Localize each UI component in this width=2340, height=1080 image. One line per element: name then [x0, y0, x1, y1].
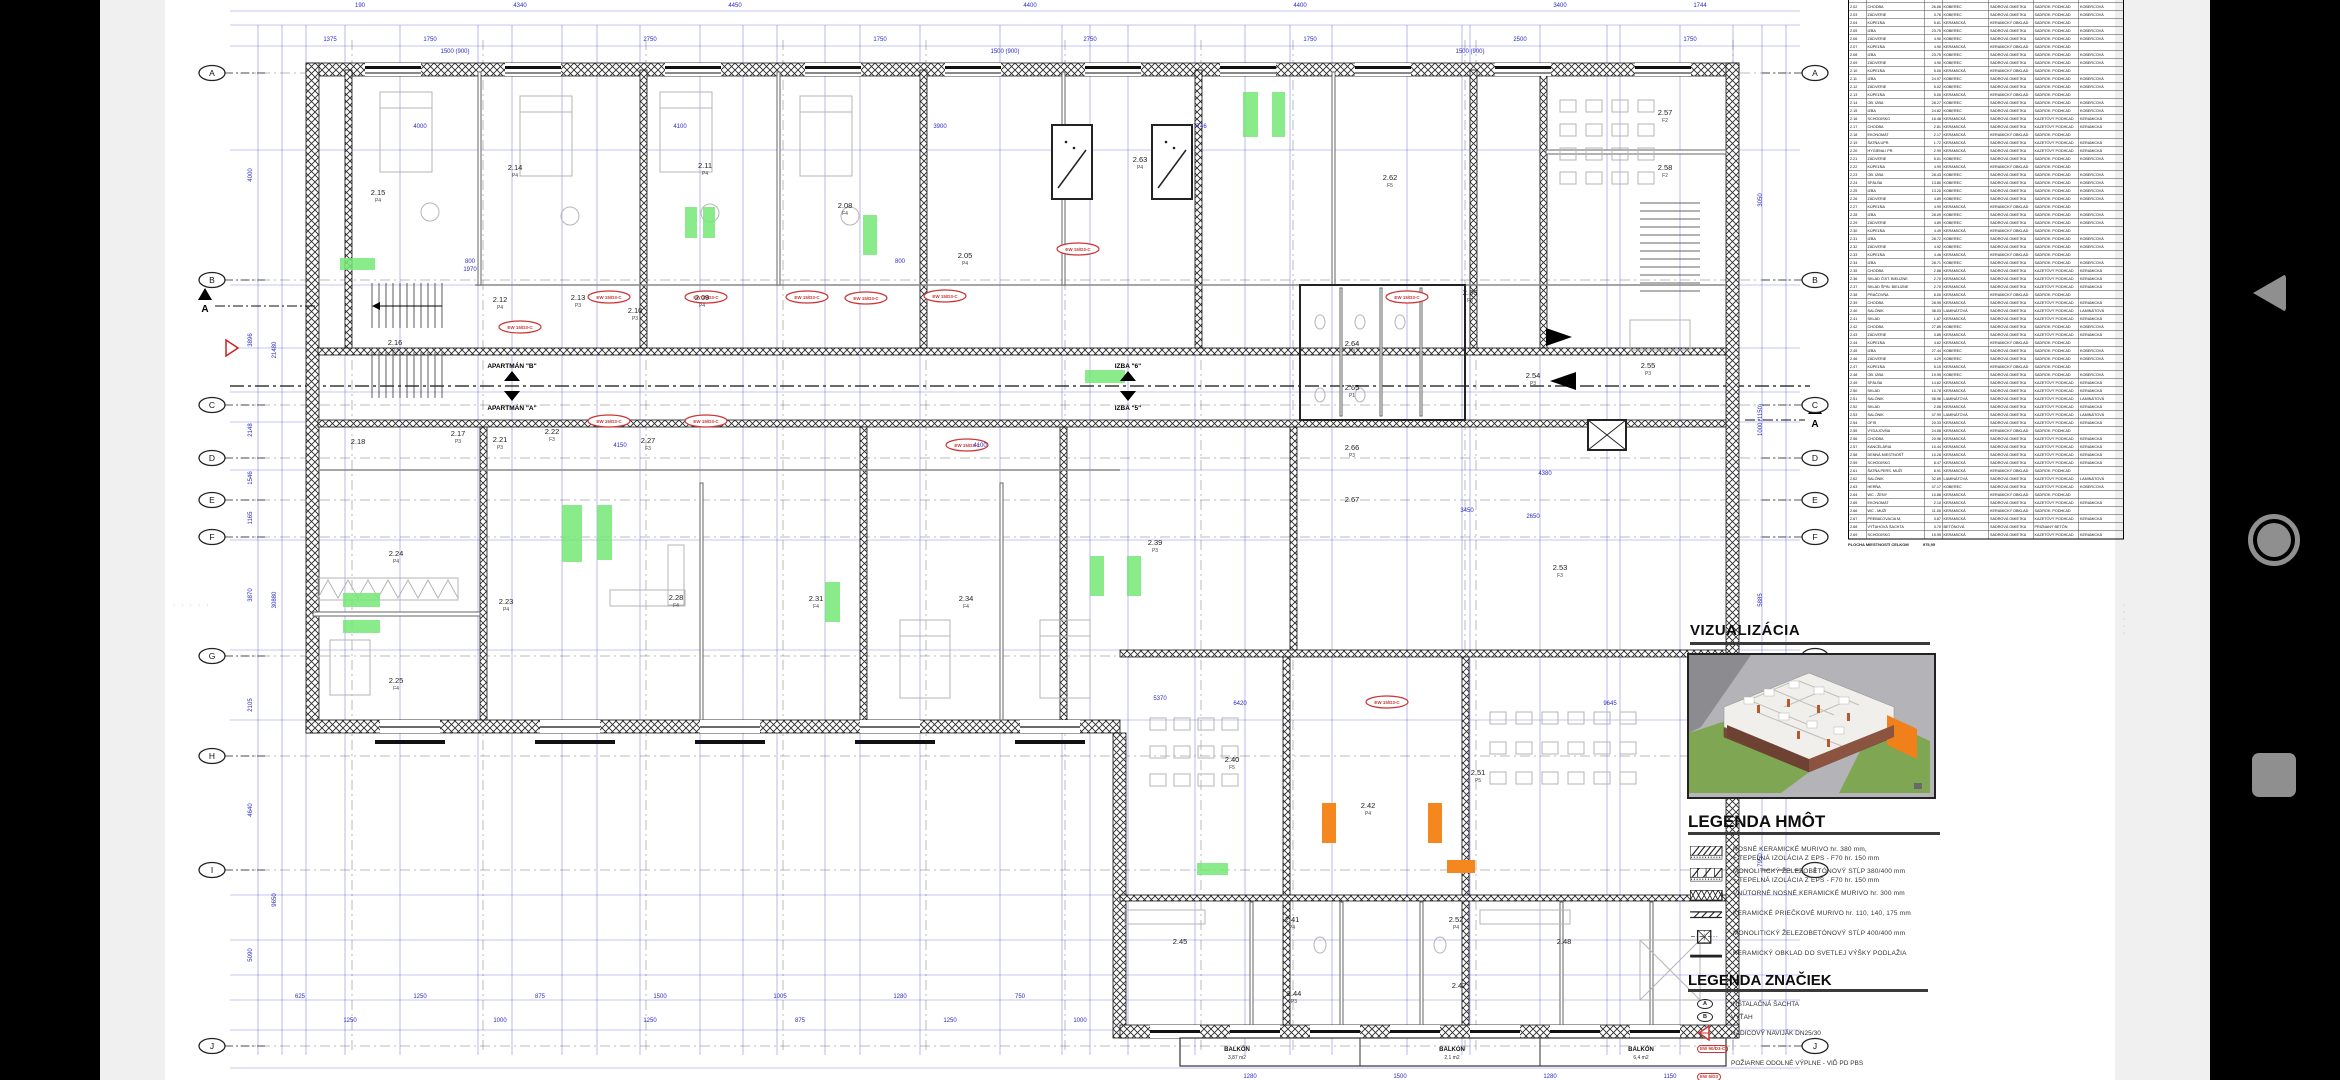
balcony-labels: BALKÓN3,87 m2BALKÓN2,1 m2BALKÓN6,4 m2 — [1224, 1045, 1654, 1061]
dimension-value: 1750 — [1683, 37, 1697, 43]
svg-text:2.63: 2.63 — [1133, 155, 1148, 164]
schedule-row: 2.61ŠATŇA PERS. MUŽI8.91KERAMICKÁKERAMIC… — [1849, 467, 2124, 475]
svg-text:F5: F5 — [1387, 183, 1393, 189]
svg-text:2.17: 2.17 — [451, 429, 466, 438]
svg-text:F3: F3 — [549, 437, 555, 443]
highlight-orange — [1447, 860, 1475, 873]
room-label: 2.51P5 — [1471, 768, 1486, 784]
dimension-value: 1250 — [343, 1018, 357, 1024]
viewer-dots-left: · · · · · — [173, 602, 210, 609]
dimension-value: 9645 — [1603, 701, 1617, 707]
schedule-row: 2.58DENNÁ MIESTNOSŤ10.28KERAMICKÁSÁDROVÁ… — [1849, 451, 2124, 459]
material-swatch-icon — [1690, 910, 1724, 925]
legend-material-item: MONOLITICKÝ ŽELEZOBETÓNOVÝ STĹP 380/400 … — [1690, 867, 1950, 885]
svg-text:P4: P4 — [497, 305, 503, 311]
android-home-button[interactable] — [2248, 514, 2300, 566]
room-label: 2.65P1 — [1345, 383, 1360, 399]
schedule-row: 2.21ZÁDVERIE5.01KOBERECSÁDROVÁ OMIETKASA… — [1849, 155, 2124, 163]
svg-text:C: C — [209, 400, 215, 410]
svg-text:2.54: 2.54 — [1526, 371, 1541, 380]
svg-text:E: E — [1812, 495, 1818, 505]
left-bezel — [0, 0, 100, 1080]
room-label: 2.21P3 — [493, 435, 508, 451]
svg-text:BALKÓN: BALKÓN — [1628, 1045, 1654, 1053]
svg-text:2.09: 2.09 — [695, 293, 710, 302]
schedule-row: 2.68VÝŤAHOVÁ ŠACHTA3.70BETÓNOVÁSÁDROVÁ O… — [1849, 523, 2124, 531]
svg-text:2.57: 2.57 — [1658, 108, 1673, 117]
highlight-green — [1197, 863, 1228, 875]
svg-text:I: I — [211, 865, 213, 875]
dimension-value: 1750 — [873, 37, 887, 43]
room-label: 2.34F4 — [959, 594, 974, 610]
svg-text:6,4 m2: 6,4 m2 — [1633, 1055, 1649, 1061]
grid-bubble-f: F — [1762, 530, 1828, 545]
svg-text:BALKÓN: BALKÓN — [1439, 1045, 1465, 1053]
schedule-row: 2.51SALÓNIK56.96LAMINÁTOVÁSÁDROVÁ OMIETK… — [1849, 395, 2124, 403]
svg-text:EW 15/D3-C: EW 15/D3-C — [853, 296, 879, 301]
svg-text:B: B — [209, 275, 215, 285]
svg-text:2.44: 2.44 — [1287, 989, 1302, 998]
dimension-value: 2105 — [248, 698, 254, 712]
legend-material-item: NOSNÉ KERAMICKÉ MURIVO hr. 380 mm,+ TEPE… — [1690, 845, 1950, 863]
schedule-row: 2.59SCHODISKO8.47KERAMICKÁSÁDROVÁ OMIETK… — [1849, 459, 2124, 467]
dimension-value: 2750 — [1083, 37, 1097, 43]
dimension-value: 1500 (900) — [440, 49, 469, 55]
svg-text:APARTMÁN "A": APARTMÁN "A" — [487, 403, 536, 412]
svg-text:EW 15/D3-C: EW 15/D3-C — [1065, 247, 1091, 252]
svg-text:P3: P3 — [575, 303, 581, 309]
svg-text:2.25: 2.25 — [389, 676, 404, 685]
dimension-value: 1150 — [1664, 1074, 1678, 1080]
svg-text:P4: P4 — [503, 607, 509, 613]
svg-text:P4: P4 — [702, 171, 708, 177]
svg-text:2.42: 2.42 — [1361, 801, 1376, 810]
room-label: 2.31F4 — [809, 594, 824, 610]
room-label: 2.09P4 — [695, 293, 710, 309]
svg-text:A: A — [201, 304, 208, 315]
svg-text:B: B — [1812, 275, 1818, 285]
fire-resistance-tag: EW 15/D3-C — [1057, 243, 1099, 255]
schedule-row: 2.45IZBA27.44KOBERECSÁDROVÁ OMIETKASADRO… — [1849, 347, 2124, 355]
schedule-row: 2.04KÚPEĽŇA5.61KERAMICKÁKERAMICKÝ OBKLAD… — [1849, 19, 2124, 27]
elevator — [1588, 420, 1626, 450]
svg-text:2.18: 2.18 — [351, 437, 366, 446]
dimension-value: 1165 — [248, 511, 254, 525]
fire-resistance-tag: EW 15/D3-C — [924, 290, 966, 302]
schedule-row: 2.15IZBA24.82KOBERECSÁDROVÁ OMIETKASADRO… — [1849, 107, 2124, 115]
dimension-value: 750 — [1015, 994, 1026, 1000]
schedule-row: 2.16SCHODISKO16.48KERAMICKÁSÁDROVÁ OMIET… — [1849, 115, 2124, 123]
dimension-value: 5090 — [248, 948, 254, 962]
legend-materials-list: NOSNÉ KERAMICKÉ MURIVO hr. 380 mm,+ TEPE… — [1690, 845, 1950, 969]
grid-bubble-a: A — [1762, 66, 1828, 81]
legend-material-item: KERAMICKÝ OBKLAD DO SVETLEJ VÝŠKY PODLAŽ… — [1690, 949, 1950, 965]
schedule-row: 2.47KÚPEĽŇA5.15KERAMICKÁKERAMICKÝ OBKLAD… — [1849, 363, 2124, 371]
balcony-label: BALKÓN3,87 m2 — [1224, 1045, 1250, 1061]
svg-text:H: H — [209, 751, 215, 761]
room-label: 2.08F4 — [838, 201, 853, 217]
svg-text:2.12: 2.12 — [493, 295, 508, 304]
dimension-value: 3900 — [933, 124, 947, 130]
svg-text:G: G — [209, 651, 216, 661]
svg-text:2.64: 2.64 — [1345, 339, 1360, 348]
schedule-row: 2.69SCHODISKO15.95KERAMICKÁSÁDROVÁ OMIET… — [1849, 531, 2124, 539]
room-label: 2.24P4 — [389, 549, 404, 565]
dimension-value: 1750 — [423, 37, 437, 43]
dimension-value: 3870 — [248, 588, 254, 602]
dimension-value: 4100 — [673, 124, 687, 130]
room-label: 2.67 — [1345, 495, 1360, 504]
schedule-row: 2.09ZÁDVERIE4.90KOBERECSÁDROVÁ OMIETKASA… — [1849, 59, 2124, 67]
room-label: 2.42P4 — [1361, 801, 1376, 817]
dimension-value: 1005 — [773, 994, 787, 1000]
dimension-text: 1904340445044004400340017441375175027501… — [248, 3, 1764, 1080]
room-label: 2.14P4 — [508, 163, 523, 179]
svg-text:J: J — [210, 1041, 214, 1051]
svg-text:2.58: 2.58 — [1658, 163, 1673, 172]
svg-text:P5: P5 — [1475, 778, 1481, 784]
room-label: 2.62F5 — [1383, 173, 1398, 189]
dimension-lines — [230, 11, 1800, 1068]
dimension-value: 1280 — [1543, 1074, 1557, 1080]
schedule-row: 2.46ZÁDVERIE4.29KOBERECSÁDROVÁ OMIETKASA… — [1849, 355, 2124, 363]
svg-text:F: F — [209, 532, 214, 542]
schedule-row: 2.18EKONOMAT2.17KERAMICKÁKERAMICKÝ OBKLA… — [1849, 131, 2124, 139]
dimension-value: 6420 — [1233, 701, 1247, 707]
legend-symbols-title: LEGENDA ZNAČIEK — [1688, 972, 1928, 992]
legend-symbols-list: AINŠTALAČNÁ ŠACHTABVÝŤAHHADICOVÝ NAVIJÁK… — [1697, 999, 1947, 1080]
svg-text:EW 15/D3-C: EW 15/D3-C — [1374, 700, 1400, 705]
svg-text:2.56: 2.56 — [1463, 288, 1478, 297]
svg-text:P3: P3 — [1467, 298, 1473, 304]
room-label: 2.17P3 — [451, 429, 466, 445]
stairs-right — [1640, 203, 1700, 291]
dimension-value: 3050 — [1758, 193, 1764, 207]
svg-text:2.10: 2.10 — [628, 306, 643, 315]
highlight-green — [703, 207, 715, 238]
room-label: 2.48 — [1557, 937, 1572, 946]
dimension-value: 21480 — [272, 341, 278, 358]
dimension-value: 800 — [465, 259, 476, 265]
fire-resistance-tag: EW 15/D3-C — [588, 291, 630, 303]
dimension-value: 1000 — [493, 1018, 507, 1024]
schedule-row: 2.52SKLAD2.08KERAMICKÁSÁDROVÁ OMIETKAKAZ… — [1849, 403, 2124, 411]
schedule-row: 2.65EKONOMAT2.10KERAMICKÁSÁDROVÁ OMIETKA… — [1849, 499, 2124, 507]
schedule-row: 2.32ZÁDVERIE4.92KOBERECSÁDROVÁ OMIETKASA… — [1849, 243, 2124, 251]
dimension-value: 4400 — [1293, 3, 1307, 9]
svg-text:D: D — [1812, 453, 1818, 463]
room-label: 2.58F2 — [1658, 163, 1673, 179]
material-swatch-icon — [1690, 890, 1724, 905]
highlight-orange — [1322, 803, 1336, 843]
schedule-row: 2.53SALÓNIK47.99LAMINÁTOVÁSÁDROVÁ OMIETK… — [1849, 411, 2124, 419]
schedule-row: 2.29ZÁDVERIE4.89KOBERECSÁDROVÁ OMIETKASA… — [1849, 219, 2124, 227]
svg-text:2.11: 2.11 — [698, 161, 712, 170]
dimension-value: 30880 — [272, 591, 278, 608]
room-label: 2.47 — [1452, 981, 1467, 990]
dimension-value: 4000 — [413, 124, 427, 130]
balcony-label: BALKÓN2,1 m2 — [1439, 1045, 1465, 1061]
room-label: 2.12P4 — [493, 295, 508, 311]
material-swatch-icon — [1690, 950, 1724, 965]
fire-resistance-tag: EW 15/D3-C — [1366, 696, 1408, 708]
highlight-orange — [1428, 803, 1442, 843]
svg-text:2.13: 2.13 — [571, 293, 586, 302]
schedule-row: 2.55VÝDAJOVŇA24.08KERAMICKÁKERAMICKÝ OBK… — [1849, 427, 2124, 435]
room-label: 2.55P3 — [1641, 361, 1656, 377]
dimension-value: 5370 — [1153, 696, 1167, 702]
dimension-value: 1546 — [248, 471, 254, 485]
schedule-row: 2.22KÚPEĽŇA4.99KERAMICKÁKERAMICKÝ OBKLAD… — [1849, 163, 2124, 171]
dimension-value: 2148 — [248, 423, 254, 437]
svg-text:P4: P4 — [1365, 811, 1371, 817]
fire-resistance-tag: EW 15/D3-C — [588, 415, 630, 427]
svg-text:2.22: 2.22 — [545, 427, 560, 436]
highlight-orange-group — [1322, 803, 1475, 873]
schedule-row: 2.10KÚPEĽŇA5.00KERAMICKÁKERAMICKÝ OBKLAD… — [1849, 67, 2124, 75]
highlight-green — [685, 207, 697, 238]
room-label: 2.63P4 — [1133, 155, 1148, 171]
schedule-row: 2.50SKLAD10.78KERAMICKÁSÁDROVÁ OMIETKAKA… — [1849, 387, 2124, 395]
dimension-value: 875 — [795, 1018, 806, 1024]
grid-bubble-d: D — [1762, 451, 1828, 466]
dimension-value: 2500 — [1513, 37, 1527, 43]
svg-text:A: A — [1811, 419, 1818, 430]
legend-materials-title: LEGENDA HMÔT — [1688, 812, 1940, 835]
svg-text:2.31: 2.31 — [809, 594, 824, 603]
svg-text:2.16: 2.16 — [388, 338, 403, 347]
legend-material-item: MONOLITICKÝ ŽELEZOBETÓNOVÝ STĹP 400/400 … — [1690, 929, 1950, 945]
schedule-row: 2.67PREBAĽOVACIA M.3.87KERAMICKÁSÁDROVÁ … — [1849, 515, 2124, 523]
schedule-row: 2.11IZBA24.97KOBERECSÁDROVÁ OMIETKASADRO… — [1849, 75, 2124, 83]
dimension-value: 2750 — [643, 37, 657, 43]
shaft-oval-icon: B — [1697, 1012, 1713, 1022]
schedule-row: 2.44KÚPEĽŇA4.62KERAMICKÁKERAMICKÝ OBKLAD… — [1849, 339, 2124, 347]
svg-text:2.67: 2.67 — [1345, 495, 1360, 504]
svg-text:2.62: 2.62 — [1383, 173, 1398, 182]
room-label: 2.22F3 — [545, 427, 560, 443]
schedule-row: 2.39CHODBA28.95KERAMICKÁSÁDROVÁ OMIETKAK… — [1849, 299, 2124, 307]
svg-text:P3: P3 — [1349, 349, 1355, 355]
dimension-value: 3896 — [248, 333, 254, 347]
dimension-value: 1500 — [653, 994, 667, 1000]
dimension-value: 4400 — [1023, 3, 1037, 9]
schedule-row: 2.30KÚPEĽŇA4.49KERAMICKÁKERAMICKÝ OBKLAD… — [1849, 227, 2124, 235]
schedule-row: 2.28IZBA28.09KOBERECSÁDROVÁ OMIETKASADRO… — [1849, 211, 2124, 219]
svg-text:E: E — [209, 495, 215, 505]
dimension-value: 1250 — [643, 1018, 657, 1024]
dimension-value: 4150 — [613, 443, 627, 449]
visualization-image — [1687, 653, 1936, 799]
svg-text:D: D — [209, 453, 215, 463]
schedule-row: 2.08IZBA23.75KOBERECSÁDROVÁ OMIETKASADRO… — [1849, 51, 2124, 59]
dimension-value: 3450 — [1460, 508, 1474, 514]
svg-text:2.55: 2.55 — [1641, 361, 1656, 370]
schedule-row: 2.17CHODBA2.81KERAMICKÁSÁDROVÁ OMIETKAKA… — [1849, 123, 2124, 131]
room-label: 2.66P3 — [1345, 443, 1360, 459]
svg-text:IZBA "5": IZBA "5" — [1115, 405, 1142, 412]
room-label: 2.40F5 — [1225, 755, 1240, 771]
svg-text:2.23: 2.23 — [499, 597, 514, 606]
balconies — [375, 740, 1726, 1066]
svg-text:P3: P3 — [1530, 381, 1536, 387]
dimension-value: 1744 — [1693, 3, 1707, 9]
schedule-row: 2.25IZBA13.20KOBERECSÁDROVÁ OMIETKASADRO… — [1849, 187, 2124, 195]
svg-text:2.27: 2.27 — [641, 436, 656, 445]
highlight-green — [863, 215, 877, 255]
android-recents-button[interactable] — [2252, 753, 2296, 797]
highlight-green — [825, 582, 840, 622]
fire-tag-icon: EW 90/D3-C — [1697, 1045, 1728, 1053]
android-back-button[interactable] — [2253, 274, 2286, 312]
svg-text:P1: P1 — [1349, 393, 1355, 399]
svg-text:P4: P4 — [375, 198, 381, 204]
fire-resistance-tag: EW 15/D3-C — [499, 321, 541, 333]
svg-text:2.08: 2.08 — [838, 201, 853, 210]
schedule-row: 2.12ZÁDVERIE5.02KOBERECSÁDROVÁ OMIETKASA… — [1849, 83, 2124, 91]
highlight-green — [597, 505, 612, 560]
svg-text:APARTMÁN "B": APARTMÁN "B" — [487, 361, 536, 370]
schedule-row: 2.43ZÁDVERIE3.85KERAMICKÁSÁDROVÁ OMIETKA… — [1849, 331, 2124, 339]
visualization-title: VIZUALIZÁCIA — [1690, 622, 1930, 645]
fire-resistance-tag: EW 15/D3-C — [845, 292, 887, 304]
schedule-row: 2.36SKLAD ČIST. BIELIZNE2.70KERAMICKÁSÁD… — [1849, 275, 2124, 283]
schedule-row: 2.62SALÓNIK32.69LAMINÁTOVÁSÁDROVÁ OMIETK… — [1849, 475, 2124, 483]
dimension-value: 4380 — [1538, 471, 1552, 477]
svg-text:BALKÓN: BALKÓN — [1224, 1045, 1250, 1053]
svg-text:2.24: 2.24 — [389, 549, 404, 558]
legend-material-item: KERAMICKÉ PRIEČKOVÉ MURIVO hr. 110, 140,… — [1690, 909, 1950, 925]
svg-text:2.05: 2.05 — [958, 251, 973, 260]
fire-resistance-tag: EW 15/D3-C — [685, 415, 727, 427]
direction-arrows — [1546, 328, 1576, 390]
dimension-value: 1500 — [1393, 1074, 1407, 1080]
svg-text:F5: F5 — [1229, 765, 1235, 771]
schedule-row: 2.14OB. IZBA28.27KOBERECSÁDROVÁ OMIETKAS… — [1849, 99, 2124, 107]
balcony-label: BALKÓN6,4 m2 — [1628, 1045, 1654, 1061]
hose-reel-icon — [1697, 1025, 1711, 1041]
svg-text:IZBA "6": IZBA "6" — [1115, 363, 1142, 370]
schedule-row: 2.41SKLAD1.87KERAMICKÁSÁDROVÁ OMIETKAKAZ… — [1849, 315, 2124, 323]
schedule-footer-value: 975,95 — [1923, 543, 1935, 548]
viewer-dots-right: · · · · · — [2123, 602, 2127, 637]
svg-text:2.65: 2.65 — [1345, 383, 1360, 392]
dimension-value: 1250 — [943, 1018, 957, 1024]
room-label: 2.52P4 — [1449, 915, 1464, 931]
hose-reel-marker — [226, 340, 238, 356]
dimension-value: 4100 — [973, 443, 987, 449]
pool-tables — [1052, 125, 1192, 199]
highlight-green — [343, 620, 380, 633]
room-label: 2.28F4 — [669, 593, 684, 609]
room-label: 2.23P4 — [499, 597, 514, 613]
dimension-value: 1970 — [463, 267, 477, 273]
room-label: 2.13P3 — [571, 293, 586, 309]
schedule-footer: PLOCHA MIESTNOSTÍ CELKOM 975,95 — [1848, 543, 2114, 548]
schedule-row: 2.26ZÁDVERIE4.89KOBERECSÁDROVÁ OMIETKASA… — [1849, 195, 2124, 203]
schedule-row: 2.06ZÁDVERIE4.90KOBERECSÁDROVÁ OMIETKASA… — [1849, 35, 2124, 43]
schedule-row: 2.13KÚPEĽŇA5.00KERAMICKÁKERAMICKÝ OBKLAD… — [1849, 91, 2124, 99]
svg-text:P3: P3 — [497, 445, 503, 451]
svg-text:F4: F4 — [673, 603, 679, 609]
schedule-row: 2.23OB. IZBA28.43KOBERECSÁDROVÁ OMIETKAS… — [1849, 171, 2124, 179]
grid-bubble-e: E — [1762, 493, 1828, 508]
schedule-row: 2.64WC - ŽENY10.88KERAMICKÁKERAMICKÝ OBK… — [1849, 491, 2124, 499]
fire-tag-icon: EW 5/D3 — [1697, 1073, 1721, 1080]
room-label: 2.27F3 — [641, 436, 656, 452]
svg-text:EW 15/D3-C: EW 15/D3-C — [693, 419, 719, 424]
schedule-row: 2.34IZBA28.71KOBERECSÁDROVÁ OMIETKASADRO… — [1849, 259, 2124, 267]
svg-text:2.39: 2.39 — [1148, 538, 1163, 547]
exterior-walls — [306, 63, 1739, 1038]
svg-text:2.14: 2.14 — [508, 163, 523, 172]
schedule-row: 2.27KÚPEĽŇA4.99KERAMICKÁKERAMICKÝ OBKLAD… — [1849, 203, 2124, 211]
legend-symbol-item: HADICOVÝ NAVIJÁK DN25/30 — [1697, 1025, 1947, 1041]
svg-text:2.48: 2.48 — [1557, 937, 1572, 946]
highlight-green — [1090, 556, 1104, 596]
svg-text:P4: P4 — [512, 173, 518, 179]
svg-text:2.51: 2.51 — [1471, 768, 1486, 777]
dimension-value: 1280 — [893, 994, 907, 1000]
highlight-green — [1085, 370, 1125, 383]
svg-text:F4: F4 — [393, 686, 399, 692]
svg-text:P3: P3 — [1349, 453, 1355, 459]
furniture — [318, 92, 1700, 1000]
schedule-row: 2.57KANCELÁRIA10.44KERAMICKÁSÁDROVÁ OMIE… — [1849, 443, 2124, 451]
highlight-green — [343, 593, 380, 607]
dimension-value: 4450 — [728, 3, 742, 9]
dimension-value: 625 — [295, 994, 306, 1000]
svg-text:2.53: 2.53 — [1553, 563, 1568, 572]
room-label: 2.39P3 — [1148, 538, 1163, 554]
svg-text:F3: F3 — [645, 446, 651, 452]
svg-text:F: F — [1812, 532, 1817, 542]
svg-text:F4: F4 — [963, 604, 969, 610]
dimension-value: 5885 — [1758, 593, 1764, 607]
schedule-row: 2.66WC - MUŽI11.00KERAMICKÁKERAMICKÝ OBK… — [1849, 507, 2124, 515]
room-label: 2.15P4 — [371, 188, 386, 204]
highlight-green — [562, 505, 582, 562]
svg-text:F4: F4 — [842, 211, 848, 217]
dimension-value: 2650 — [1526, 514, 1540, 520]
schedule-row: 2.38PRÁČOVŇA8.00KERAMICKÁKERAMICKÝ OBKLA… — [1849, 291, 2124, 299]
svg-text:3,87 m2: 3,87 m2 — [1228, 1055, 1246, 1061]
material-swatch-icon — [1690, 930, 1724, 945]
svg-text:2.15: 2.15 — [371, 188, 386, 197]
dimension-value: 1500 (900) — [990, 49, 1019, 55]
highlight-green — [1243, 92, 1258, 137]
schedule-row: 2.31IZBA28.72KOBERECSÁDROVÁ OMIETKASADRO… — [1849, 235, 2124, 243]
svg-text:2.34: 2.34 — [959, 594, 974, 603]
svg-text:P4: P4 — [1453, 925, 1459, 931]
svg-text:EW 15/D3-C: EW 15/D3-C — [596, 419, 622, 424]
dimension-value: 1750 — [1303, 37, 1317, 43]
svg-text:P4: P4 — [393, 559, 399, 565]
svg-text:2,1 m2: 2,1 m2 — [1444, 1055, 1460, 1061]
schedule-row: 2.24SPÁLŇA13.80KOBERECSÁDROVÁ OMIETKASAD… — [1849, 179, 2124, 187]
svg-text:P3: P3 — [392, 348, 398, 354]
device-screen: EW 15/D3-CEW 15/D3-CEW 15/D3-CEW 15/D3-C… — [0, 0, 2340, 1080]
svg-text:P3: P3 — [1645, 371, 1651, 377]
schedule-row: 2.63HERŇA47.17KOBERECSÁDROVÁ OMIETKAKAZE… — [1849, 483, 2124, 491]
svg-text:EW 15/D3-C: EW 15/D3-C — [507, 325, 533, 330]
room-label: 2.45 — [1173, 937, 1188, 946]
schedule-row: 2.20HYGIENA I PR.2.99KERAMICKÁSÁDROVÁ OM… — [1849, 147, 2124, 155]
dimension-value: 190 — [355, 3, 366, 9]
svg-text:P3: P3 — [632, 316, 638, 322]
svg-text:A: A — [209, 68, 215, 78]
schedule-footer-label: PLOCHA MIESTNOSTÍ CELKOM — [1848, 543, 1909, 548]
